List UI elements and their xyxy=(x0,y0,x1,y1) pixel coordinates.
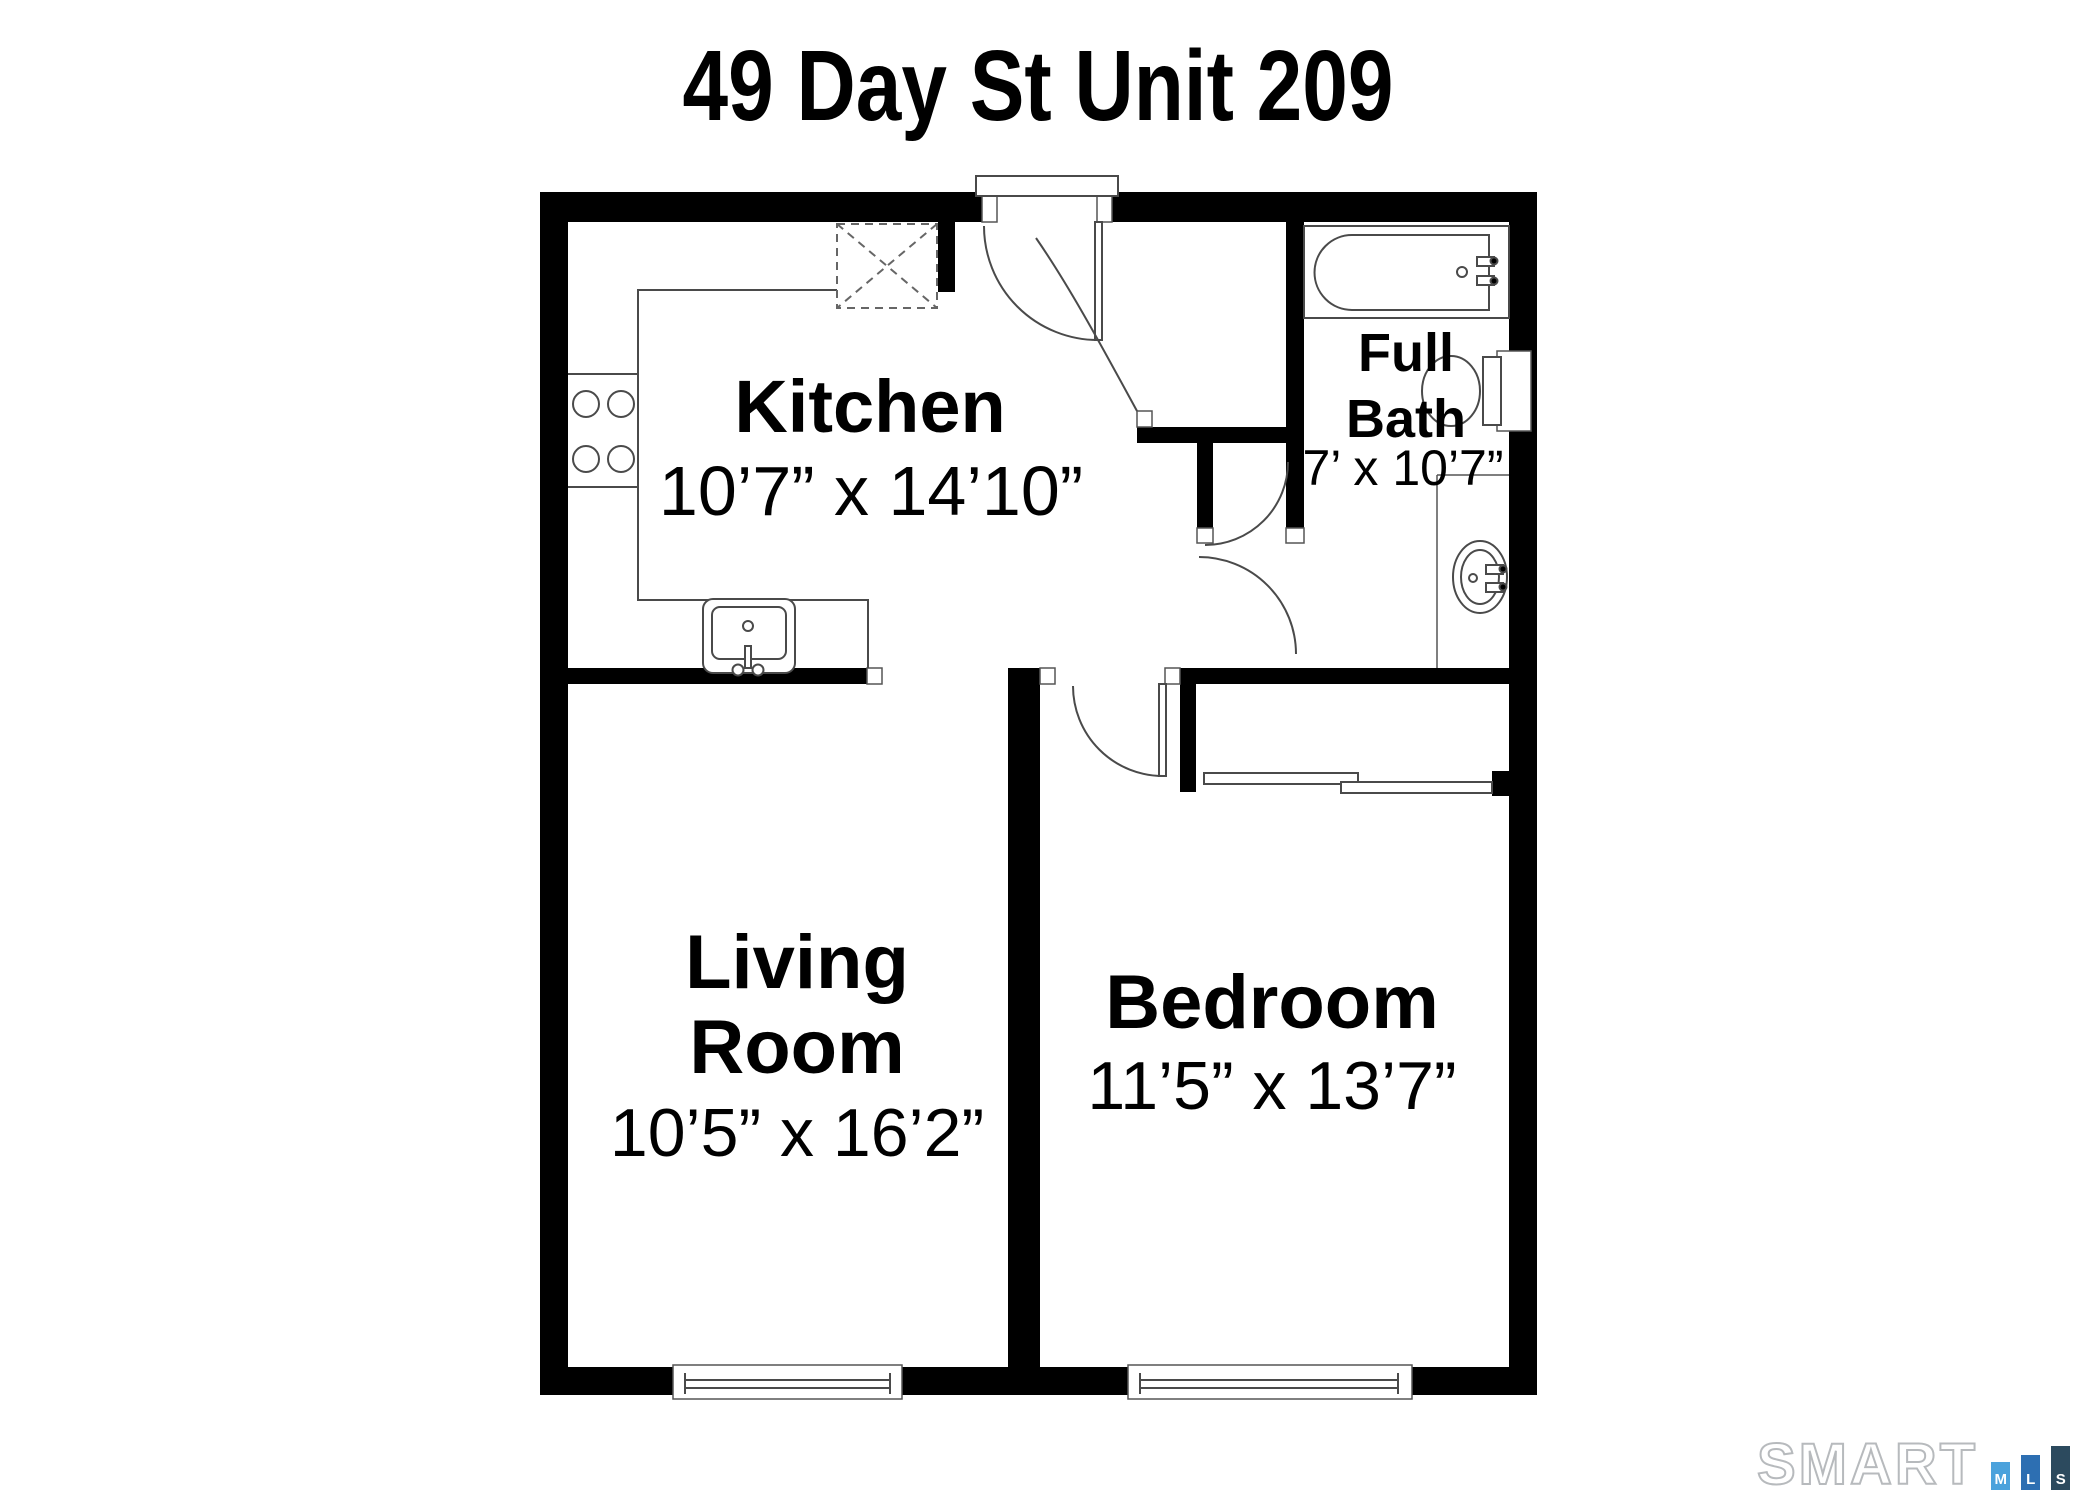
window-frame xyxy=(673,1365,902,1399)
mls-letter-s: S xyxy=(2056,1472,2066,1487)
bedroom-door-swing-arc xyxy=(1073,686,1163,776)
closet-door-panel xyxy=(1204,773,1358,784)
bedroom-door-leaf xyxy=(1159,684,1166,776)
entry-door-swing-arc-2 xyxy=(1036,238,1137,411)
bath-sink-tap-dot xyxy=(1500,584,1507,591)
pedestal-sink-icon xyxy=(1453,541,1507,613)
floor-plan-drawing xyxy=(0,0,2076,1510)
kitchen-sink-icon xyxy=(703,599,795,676)
jamb-entry-right xyxy=(1097,196,1112,222)
wall-top-left xyxy=(540,192,982,222)
wall-bath-left xyxy=(1286,192,1304,528)
mls-bar-m: M xyxy=(1991,1462,2010,1490)
wall-closet-door-stub xyxy=(1492,771,1509,796)
entry-threshold xyxy=(976,176,1118,196)
jamb-bedroom-door-left xyxy=(1040,668,1055,684)
living-room-dimensions: 10’5” x 16’2” xyxy=(610,1099,984,1167)
bedroom-dimensions: 11’5” x 13’7” xyxy=(1087,1052,1456,1120)
wall-vestibule-stub xyxy=(1197,443,1213,528)
burner xyxy=(608,446,634,472)
kitchen-dimensions: 10’7” x 14’10” xyxy=(659,456,1083,526)
bedroom-window-icon xyxy=(1128,1365,1412,1399)
mls-bars: M L S xyxy=(1991,1446,2070,1490)
living-room-label-line2: Room xyxy=(689,1010,904,1086)
bedroom-door xyxy=(1073,684,1166,776)
wall-top-right xyxy=(1112,192,1537,222)
bath-door xyxy=(1199,462,1296,654)
toilet-alcove xyxy=(1497,351,1531,431)
bedroom-label: Bedroom xyxy=(1105,965,1439,1041)
jamb-bath-door-left xyxy=(1197,528,1213,543)
closet-sliding-doors-icon xyxy=(1204,773,1492,793)
jamb-entry-left xyxy=(982,196,997,222)
wall-fridge-stub xyxy=(938,222,955,292)
mls-letter-m: M xyxy=(1994,1472,2007,1487)
tub-tap-dot xyxy=(1491,258,1498,265)
wall-closet-left xyxy=(1180,684,1196,792)
bath-door-swing-arc xyxy=(1205,462,1288,545)
burner xyxy=(573,446,599,472)
refrigerator-icon xyxy=(837,224,937,308)
bath-sink-basin xyxy=(1461,550,1499,604)
burner xyxy=(608,391,634,417)
sink-drain xyxy=(743,621,753,631)
jamb-bath-door-right xyxy=(1286,528,1304,543)
page-title: 49 Day St Unit 209 xyxy=(683,36,1394,136)
tub-tap-dot xyxy=(1491,278,1498,285)
bathtub-icon xyxy=(1304,226,1509,318)
bath-door-swing-arc-2 xyxy=(1199,557,1296,654)
full-bath-label-line1: Full xyxy=(1358,326,1454,380)
sink-handle xyxy=(733,665,744,676)
wall-left xyxy=(540,192,568,1395)
smart-logo-text: SMART xyxy=(1757,1440,1978,1490)
jamb-bedroom-door-right xyxy=(1165,668,1180,684)
wall-bedroom-top xyxy=(1180,668,1509,684)
closet-door-panel xyxy=(1341,782,1492,793)
kitchen-label: Kitchen xyxy=(734,370,1005,444)
sink-handle xyxy=(753,665,764,676)
full-bath-dimensions: 7’ x 10’7” xyxy=(1302,443,1503,493)
stove-icon xyxy=(573,391,634,472)
mls-bar-s: S xyxy=(2051,1446,2070,1490)
entry-door-leaf xyxy=(1095,222,1102,340)
full-bath-label-line2: Bath xyxy=(1346,392,1466,446)
entry-door-swing-arc xyxy=(984,226,1098,340)
mls-bar-l: L xyxy=(2021,1455,2040,1490)
wall-hall xyxy=(1137,427,1304,443)
jamb-hall-wall-end xyxy=(1137,411,1152,427)
bath-sink-drain xyxy=(1469,574,1477,582)
living-room-window-icon xyxy=(673,1365,902,1399)
jamb-kitchen-wall-end xyxy=(867,668,882,684)
toilet-tank xyxy=(1483,357,1501,425)
burner xyxy=(573,391,599,417)
sink-faucet xyxy=(745,646,751,668)
bath-sink-tap-dot xyxy=(1500,566,1507,573)
wall-living-bedroom xyxy=(1008,668,1040,1367)
window-frame xyxy=(1128,1365,1412,1399)
living-room-label-line1: Living xyxy=(685,925,909,1001)
wall-kitchen-living xyxy=(540,668,867,684)
floor-plan-page: 49 Day St Unit 209 Kitchen 10’7” x 14’10… xyxy=(0,0,2076,1510)
mls-letter-l: L xyxy=(2026,1472,2035,1487)
tub-drain xyxy=(1457,267,1467,277)
smart-mls-logo: SMART M L S xyxy=(1757,1438,2070,1490)
